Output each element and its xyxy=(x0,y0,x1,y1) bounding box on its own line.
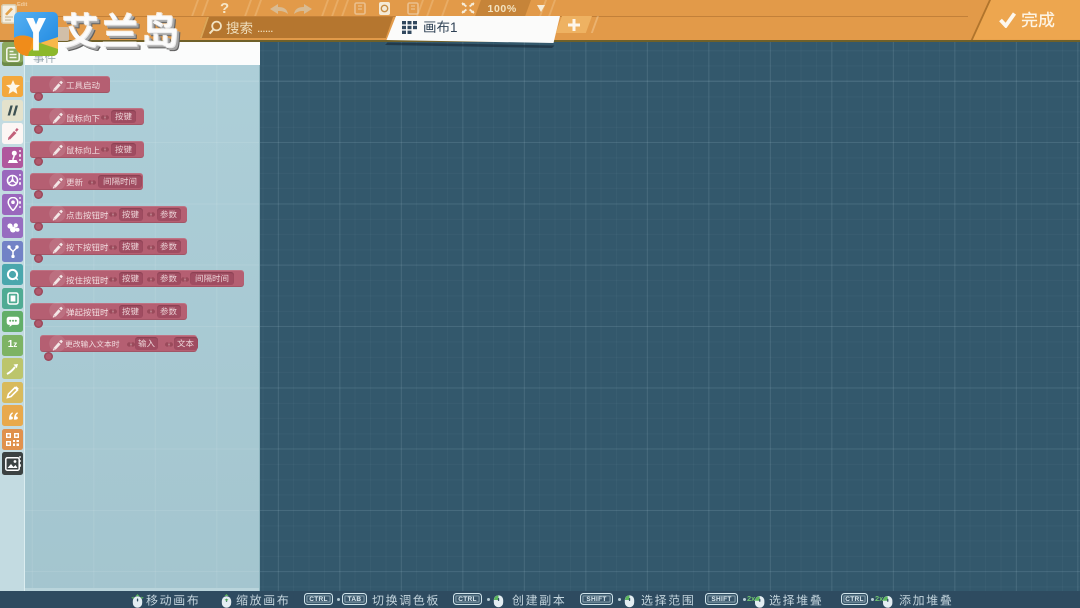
svg-text:2x: 2x xyxy=(747,594,756,603)
svg-text:2x: 2x xyxy=(875,594,884,603)
